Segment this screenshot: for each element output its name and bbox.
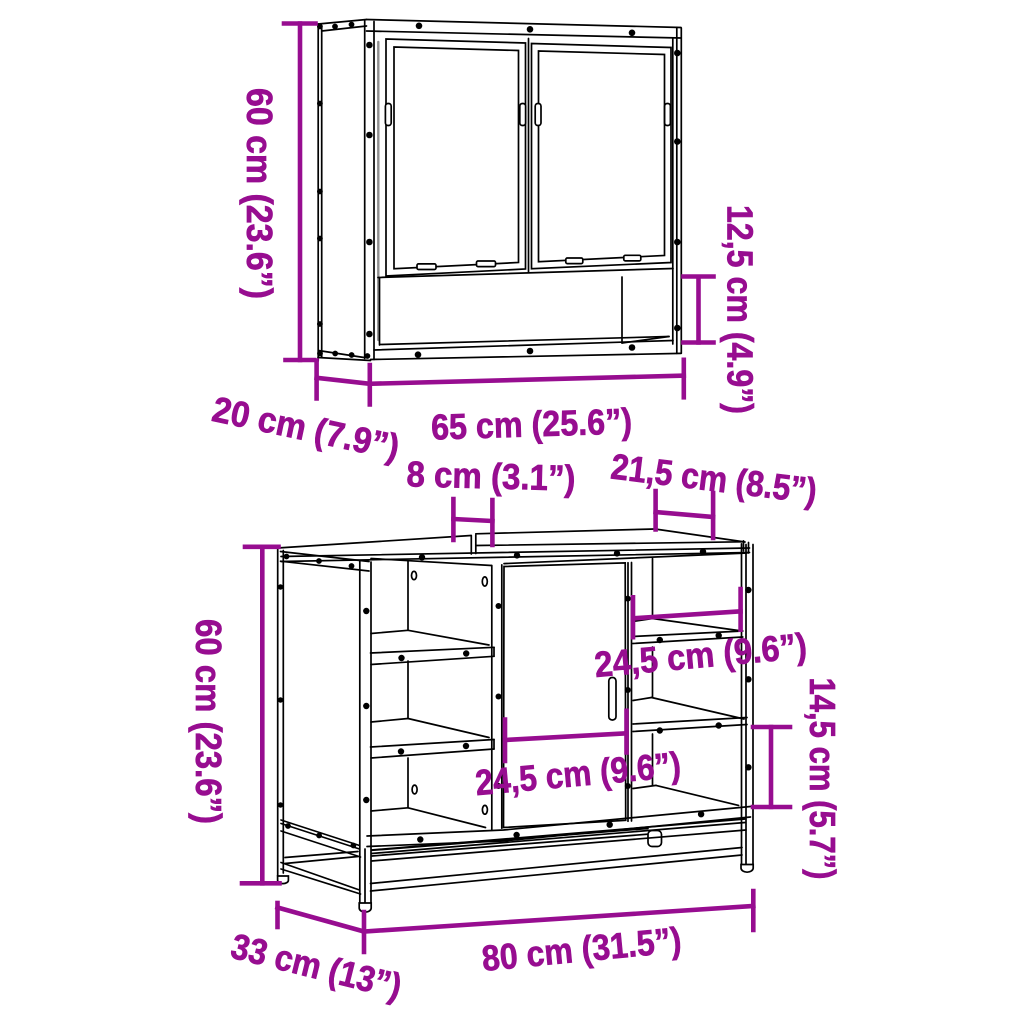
svg-text:14,5 cm (5.7”): 14,5 cm (5.7”) — [802, 678, 843, 880]
svg-text:12,5 cm (4.9”): 12,5 cm (4.9”) — [720, 205, 761, 414]
svg-text:60 cm (23.6”): 60 cm (23.6”) — [239, 88, 280, 299]
svg-text:65 cm (25.6”): 65 cm (25.6”) — [430, 400, 632, 447]
svg-text:60 cm (23.6”): 60 cm (23.6”) — [188, 619, 229, 824]
svg-text:8 cm (3.1”): 8 cm (3.1”) — [406, 453, 576, 498]
